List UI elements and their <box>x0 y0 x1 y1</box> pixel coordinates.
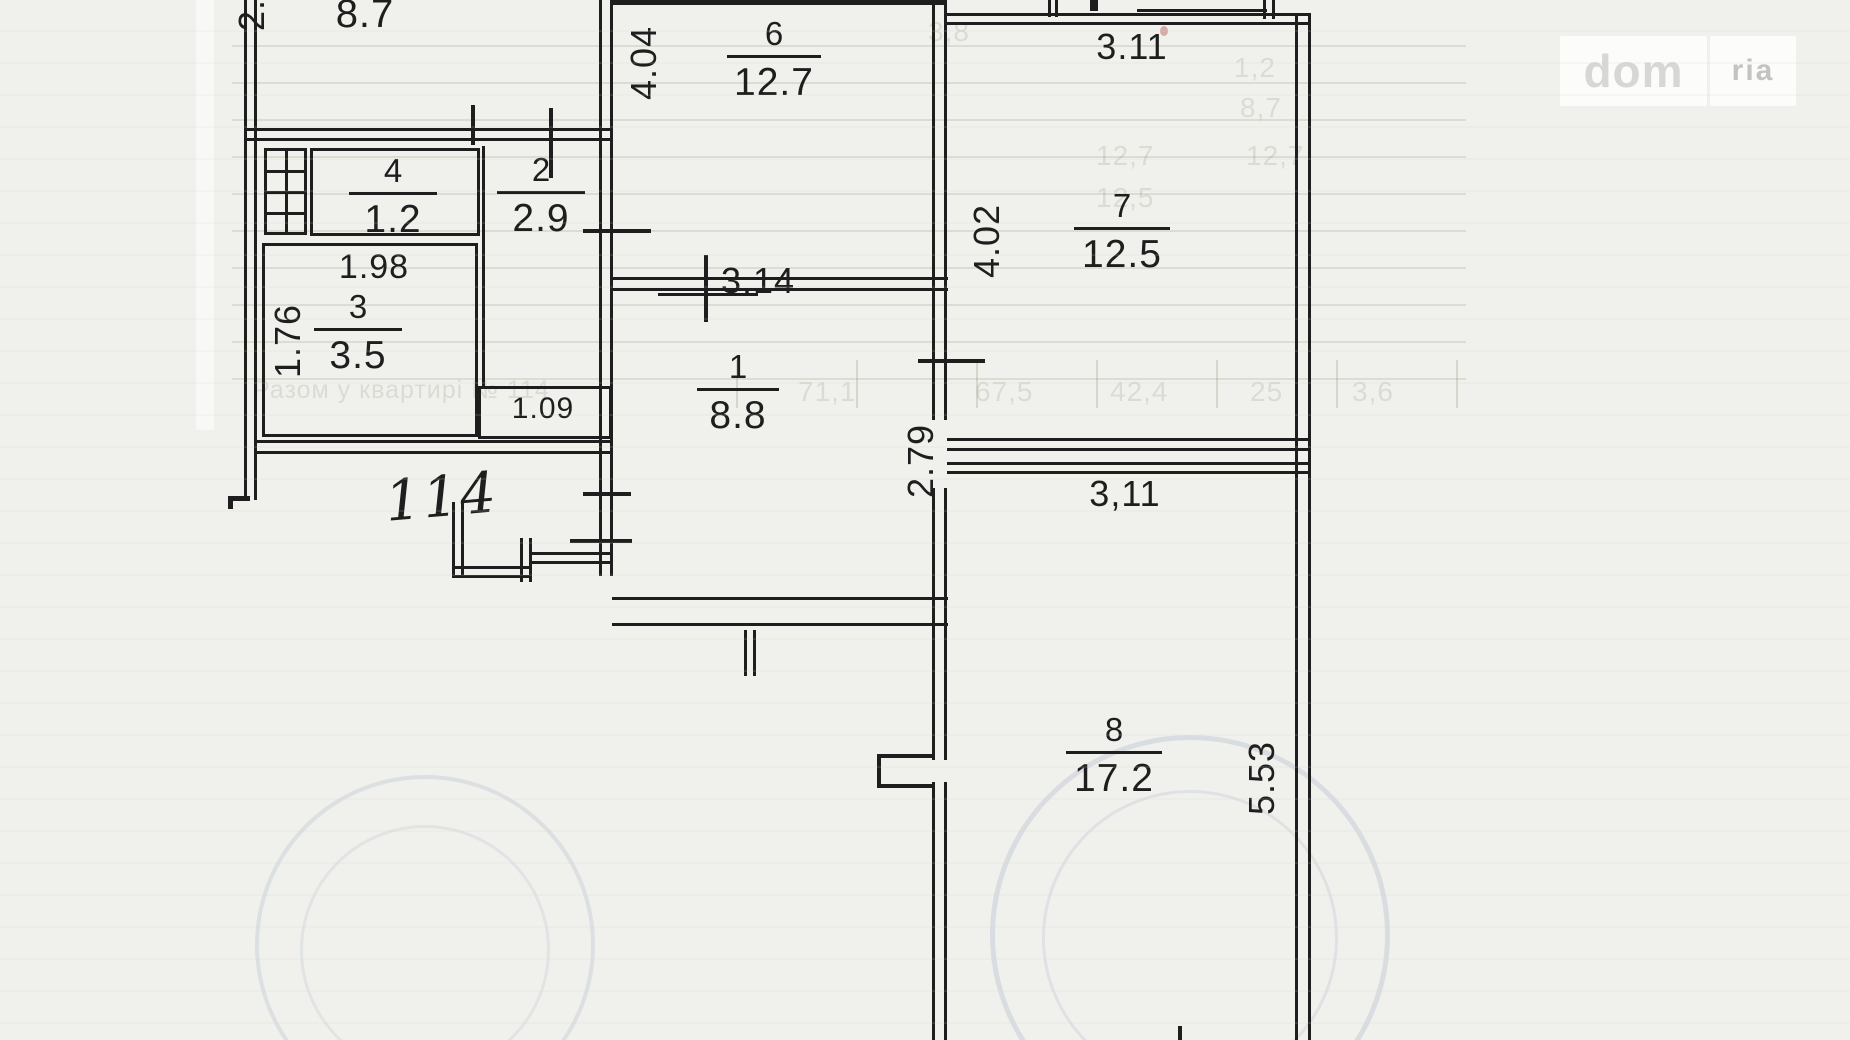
dom-ria-watermark: dom ria <box>1560 36 1796 106</box>
dim-1-76: 1.76 <box>267 299 309 383</box>
room-area: 2.9 <box>497 194 585 242</box>
bleed-value: 71,1 <box>798 376 857 408</box>
window-shaft-hatch-box <box>264 148 307 235</box>
room-number: 1 <box>697 347 779 391</box>
bleed-number: 1,2 <box>1234 52 1276 84</box>
entry-wall-high <box>530 552 612 564</box>
tick-center-wall-b <box>583 492 631 496</box>
room-area: 12.7 <box>727 58 821 106</box>
room8-notch-top <box>877 754 934 758</box>
bleed-value: 42,4 <box>1110 376 1169 408</box>
room-number: 4 <box>349 151 437 195</box>
top-stub-c <box>1263 0 1275 19</box>
room-area: 3.5 <box>314 331 402 379</box>
room-label-8: 8 17.2 <box>1066 710 1162 802</box>
wall-room2-left <box>482 146 485 389</box>
room8-door-gap <box>930 760 949 782</box>
tick-room4-top <box>471 105 475 145</box>
tick-center-wall-c <box>570 539 632 543</box>
hatch-line <box>267 212 304 215</box>
dim-2-clipped: 2. <box>231 0 273 45</box>
dim-3-11-top: 3.11 <box>1072 26 1192 68</box>
top-stub-b <box>1090 0 1098 11</box>
watermark-ria-logo: ria <box>1710 36 1796 106</box>
scan-fold-highlight <box>196 0 214 430</box>
bleed-number: 12,7 <box>1096 140 1155 172</box>
wall-room7-bottom <box>947 438 1311 451</box>
dim-1-98: 1.98 <box>324 248 424 287</box>
apartment-number-handwritten: 114 <box>382 460 500 535</box>
room-label-6: 6 12.7 <box>727 14 821 106</box>
room-area: 17.2 <box>1066 754 1162 802</box>
room-number: 3 <box>314 287 402 331</box>
wall-center-vertical <box>599 0 613 576</box>
bleed-value: 3,6 <box>1352 376 1394 408</box>
room8-notch-bottom <box>877 784 934 788</box>
dim-3-14: 3.14 <box>698 260 818 302</box>
room-label-1: 1 8.8 <box>697 347 779 439</box>
room-number: 2 <box>497 150 585 194</box>
wall-hall-right-upper <box>932 0 947 420</box>
dim-1-09: 1.09 <box>497 392 589 426</box>
wall-room6-top <box>613 0 947 5</box>
room-area: 1.2 <box>349 195 437 243</box>
dim-5-53: 5.53 <box>1241 732 1283 824</box>
room-number: 6 <box>727 14 821 58</box>
dim-4-02: 4.02 <box>966 198 1008 284</box>
wall-hall-bottom <box>612 597 948 626</box>
top-stub-a <box>1048 0 1058 17</box>
watermark-dom-logo: dom <box>1560 36 1707 106</box>
room-area: 8.8 <box>697 391 779 439</box>
wall-topleft-bottom <box>244 128 612 141</box>
wall-leftcluster-bottom <box>256 440 612 454</box>
dim-8-7: 8.7 <box>305 0 425 37</box>
room-label-7: 7 12.5 <box>1074 186 1170 278</box>
room7-window-sill <box>1137 0 1267 12</box>
room-label-2: 2 2.9 <box>497 150 585 242</box>
room-number: 8 <box>1066 710 1162 754</box>
hall-bottom-stub <box>744 630 756 676</box>
room-label-4: 4 1.2 <box>349 151 437 243</box>
scanned-floor-plan: Разом у квартирі № 114 71,1 67,5 42,4 25… <box>0 0 1850 1040</box>
dim-2-79: 2.79 <box>900 417 942 505</box>
wall-room7-top <box>947 13 1311 25</box>
hatch-line <box>267 191 304 194</box>
room-label-3: 3 3.5 <box>314 287 402 379</box>
room8-notch-end <box>877 754 881 788</box>
hatch-line <box>267 170 304 173</box>
tick-bottom-edge <box>1178 1026 1182 1040</box>
dim-3-11-room8: 3,11 <box>1064 473 1186 515</box>
room-number: 7 <box>1074 186 1170 230</box>
wall-left-outer-hook-end <box>228 496 233 509</box>
tick-center-wall-a <box>583 229 651 233</box>
wall-left-outer <box>244 0 257 500</box>
wall-right-outer <box>1295 14 1311 1040</box>
bleed-value: 25 <box>1250 376 1283 408</box>
bleed-value: 67,5 <box>975 376 1034 408</box>
bleed-number: 8,7 <box>1240 92 1282 124</box>
room-area: 12.5 <box>1074 230 1170 278</box>
tick-hall-right <box>918 359 985 363</box>
dim-4-04: 4.04 <box>623 19 665 107</box>
